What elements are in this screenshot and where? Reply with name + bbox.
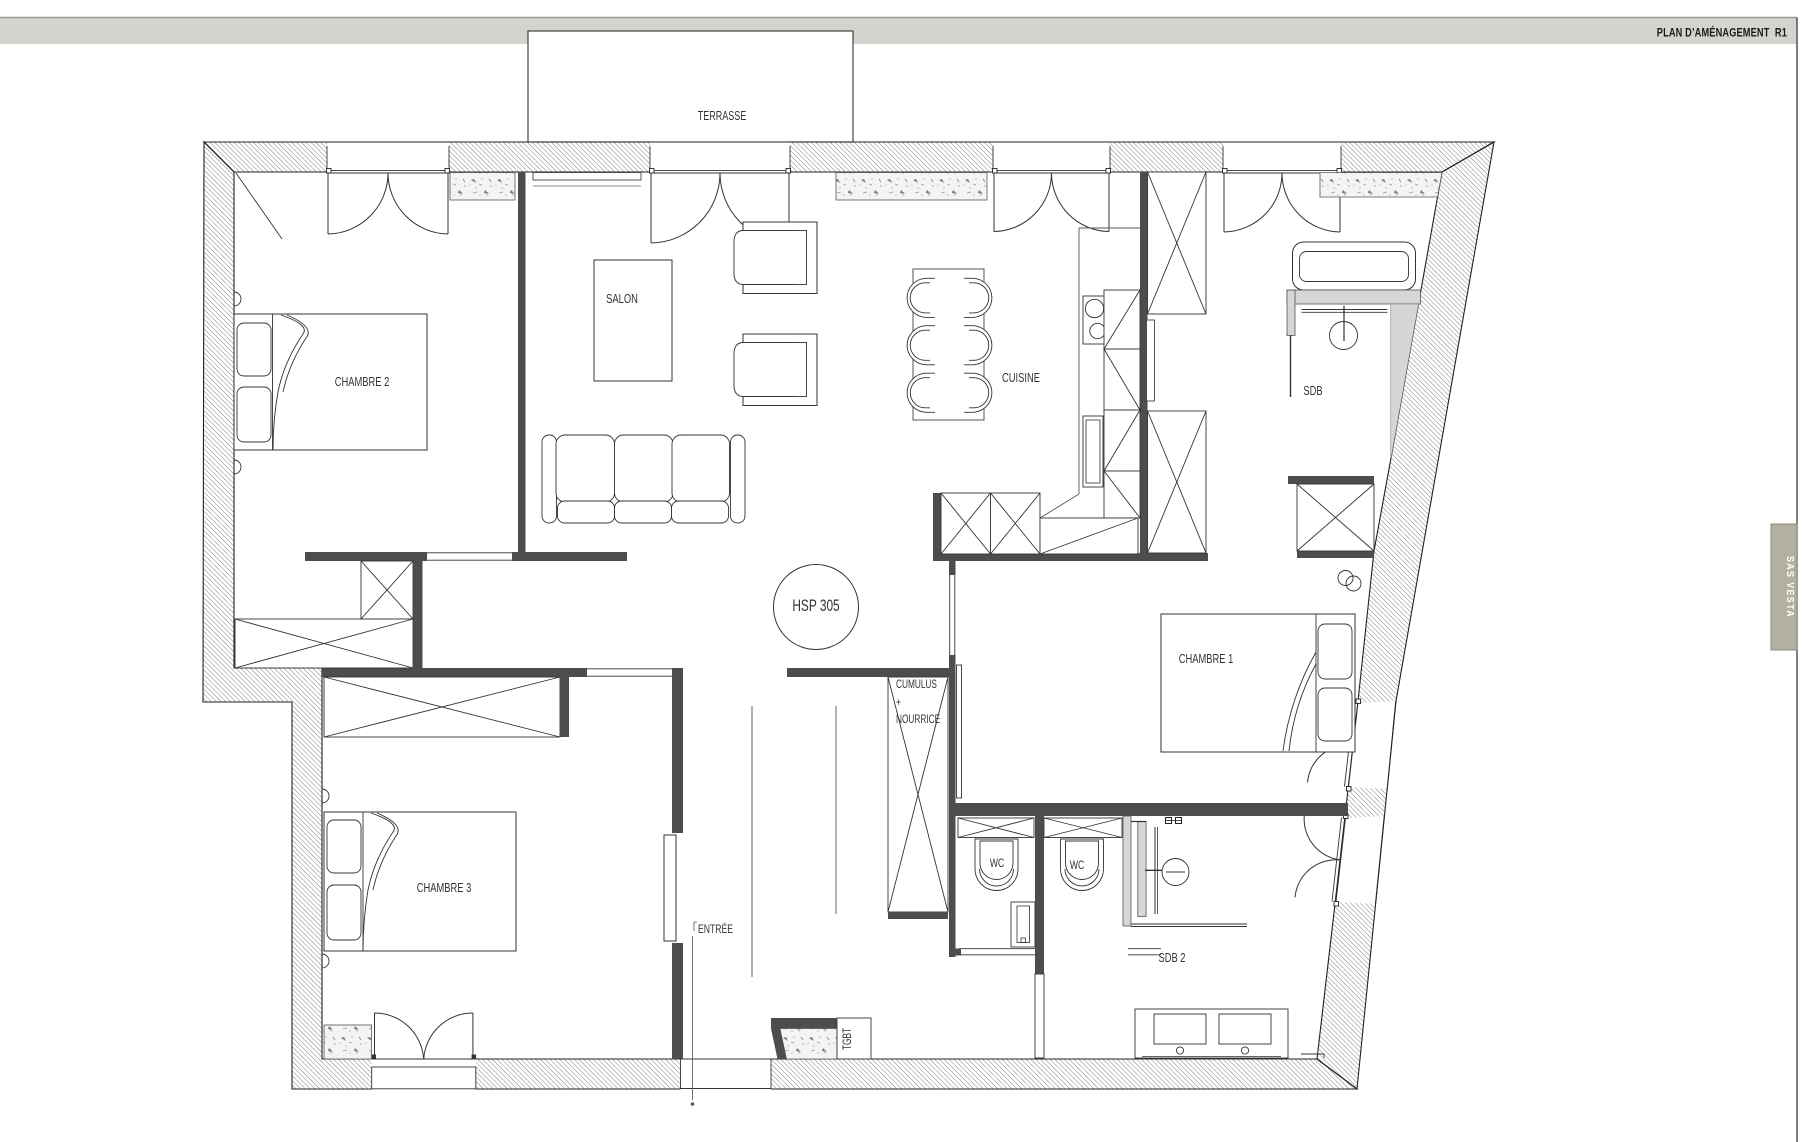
svg-text:CUMULUS: CUMULUS (896, 679, 937, 692)
svg-text:SAS VESTA: SAS VESTA (1784, 556, 1796, 618)
svg-text:CUISINE: CUISINE (1002, 372, 1040, 386)
svg-text:WC: WC (990, 858, 1005, 871)
svg-text:NOURRICE: NOURRICE (896, 714, 940, 727)
svg-text:WC: WC (1070, 860, 1085, 873)
svg-text:+: + (896, 697, 901, 710)
svg-text:HSP 305: HSP 305 (792, 597, 839, 615)
svg-text:SDB 2: SDB 2 (1158, 952, 1185, 966)
svg-text:PLAN D’AMÉNAGEMENT R1: PLAN D’AMÉNAGEMENT R1 (1657, 25, 1787, 39)
svg-text:TGBT: TGBT (842, 1028, 855, 1050)
svg-text:CHAMBRE 2: CHAMBRE 2 (335, 376, 390, 390)
svg-text:ENTRÉE: ENTRÉE (698, 922, 733, 937)
svg-text:TERRASSE: TERRASSE (698, 110, 746, 124)
svg-text:CHAMBRE 1: CHAMBRE 1 (1179, 653, 1234, 667)
svg-text:CHAMBRE 3: CHAMBRE 3 (417, 882, 472, 896)
svg-text:SDB: SDB (1303, 385, 1322, 399)
svg-text:SALON: SALON (606, 293, 638, 307)
